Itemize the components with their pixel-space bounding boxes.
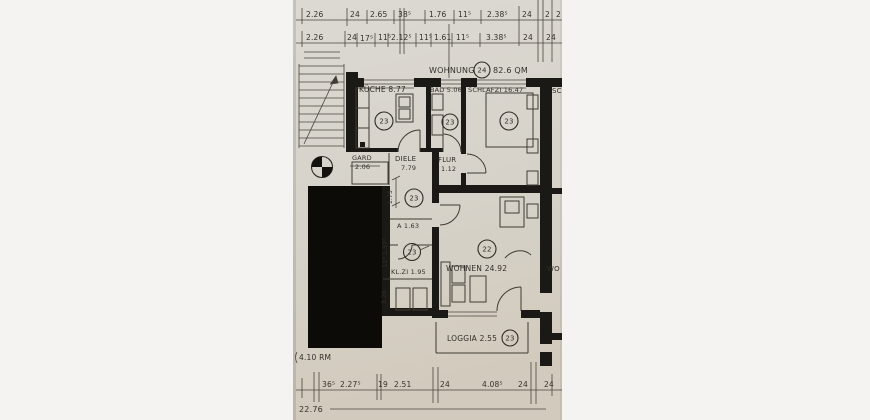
label-bad: BAD 5.06 [430,86,462,94]
dim-top1-8: 2 [545,10,550,19]
dim-top1-5: 11⁵ [458,10,471,19]
dim-top2-6: 1.61 [434,33,452,42]
label-wohnen: WOHNEN 24.92 [446,264,507,273]
circle-klzi: 23 [407,249,416,257]
circle-schlafzi: 23 [504,118,513,126]
dim-top1-9: 2 [556,10,561,19]
dim-note: 4.10 RM [299,353,331,362]
dim-top2-4: 2.12⁵ [391,33,412,42]
label-adjacent-mid: WO [547,265,560,273]
dim-bottom-4: 24 [440,380,450,389]
dim-left-2: 3.26 [381,290,388,304]
dim-top2-9: 24 [523,33,533,42]
dim-bottom-1: 2.27⁵ [340,380,361,389]
benchmark-symbol [312,157,333,178]
dim-top1-2: 2.65 [370,10,388,19]
dim-left-0: 1.75 [387,190,394,204]
dim-bottom-5: 4.08⁵ [482,380,503,389]
dim-top2-10: 24 [546,33,556,42]
label-klzi: KL.ZI 1.95 [391,268,426,276]
circle-loggia: 23 [505,335,514,343]
dim-top2-7: 11⁵ [456,33,469,42]
label-schlafzi: SCHLAFZI 16.47 [468,86,523,94]
label-diele-area: 7.79 [401,164,416,172]
dim-top1-0: 2.26 [306,10,324,19]
label-loggia: LOGGIA 2.55 [447,334,497,343]
floorplan-screenshot: 2.26 24 2.65 38⁵ 1.76 11⁵ 2.38⁵ 24 2 2 2… [0,0,870,420]
label-diele: DIELE [395,155,416,163]
dim-top1-3: 38⁵ [398,10,411,19]
dim-bottom-0: 36⁵ [322,380,335,389]
dim-bottom-3: 2.51 [394,380,412,389]
label-gard: GARD [352,154,372,162]
dim-top1-6: 2.38⁵ [487,10,508,19]
apartment-title-label: WOHNUNG [429,66,475,75]
dim-top2-5: 11⁵ [419,33,432,42]
dim-top2-0: 2.26 [306,33,324,42]
dim-top1-7: 24 [522,10,532,19]
label-flur-area: 1.12 [441,165,456,173]
floorplan-drawing: 2.26 24 2.65 38⁵ 1.76 11⁵ 2.38⁵ 24 2 2 2… [0,0,870,420]
apartment-area-label: 82.6 QM [493,66,528,75]
label-gard-area: 2.06 [355,163,370,171]
apartment-number-circle: 24 [477,67,487,75]
circle-diele: 23 [409,195,418,203]
dim-bottom-2: 19 [378,380,388,389]
circle-kueche: 23 [379,118,388,126]
label-kueche: KÜCHE 8.77 [359,85,406,94]
dim-top2-8: 3.38⁵ [486,33,507,42]
dim-total: 22.76 [299,405,323,414]
circle-bad: 23 [445,119,454,127]
label-adjacent-top: SC [552,87,562,95]
dim-top1-1: 24 [350,10,360,19]
dim-bottom-7: 24 [544,380,554,389]
dim-top2-2: 17⁵ [360,34,373,43]
dark-block [308,186,382,348]
dim-bottom-6: 24 [518,380,528,389]
dim-left-1: 11⁵ 1.37⁵ [382,238,389,268]
label-flur: FLUR [438,156,456,164]
dim-top1-4: 1.76 [429,10,447,19]
dim-top2-3: 11⁵ [378,33,391,42]
dim-top2-1: 24 [347,33,357,42]
circle-wohnen: 22 [482,246,491,254]
label-abstell: A 1.63 [397,222,419,230]
